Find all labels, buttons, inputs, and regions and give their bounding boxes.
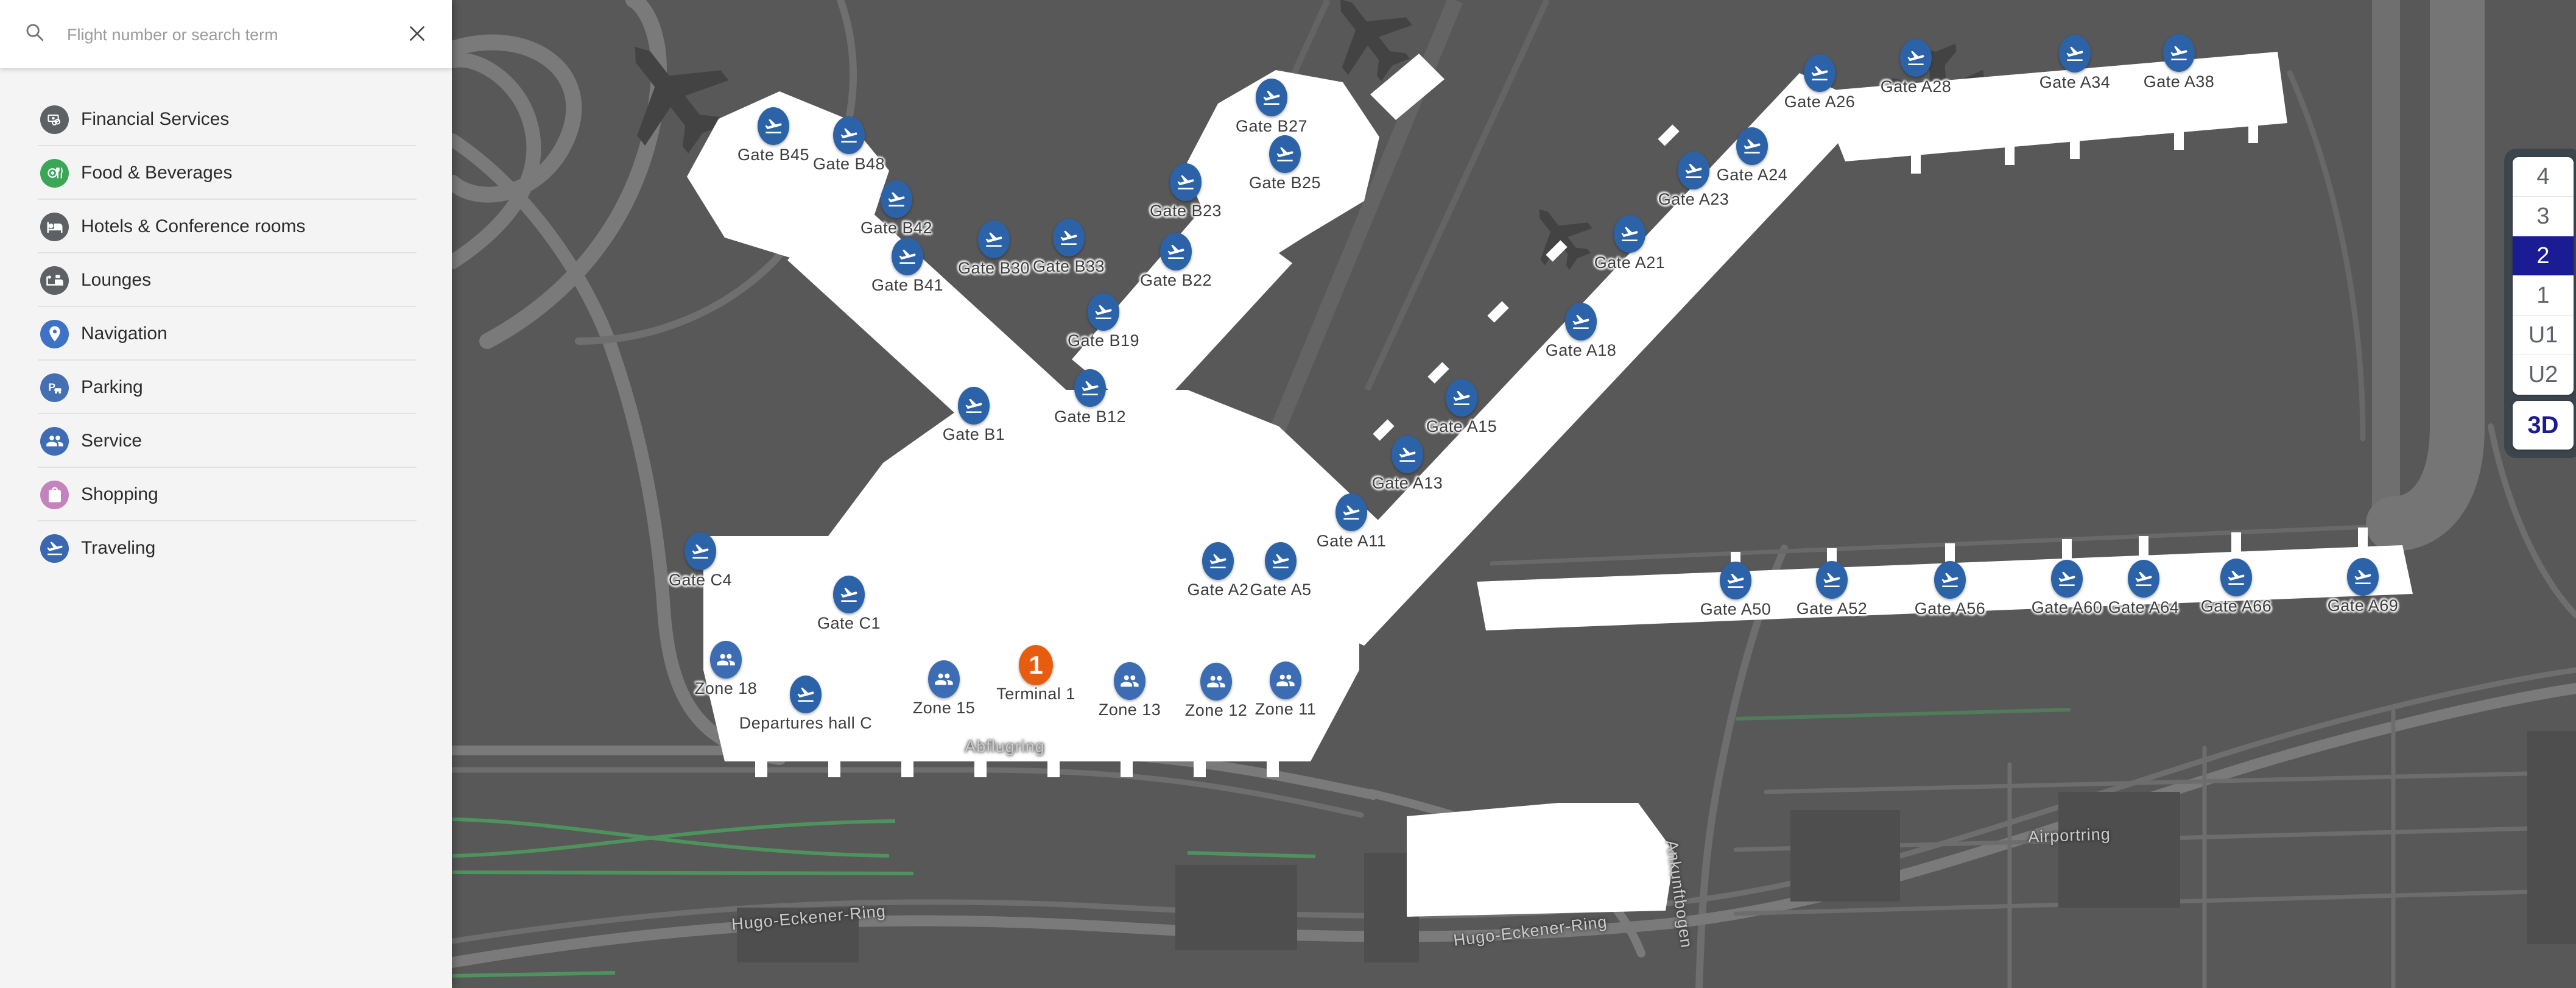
floor-button-u1[interactable]: U1 <box>2513 316 2574 355</box>
sidebar-item-service[interactable]: Service <box>0 414 452 468</box>
gate-marker[interactable] <box>1934 561 1966 599</box>
gate-marker[interactable] <box>892 238 923 275</box>
plane-icon <box>40 534 69 563</box>
gate-marker[interactable] <box>1900 39 1932 77</box>
gate-marker[interactable] <box>1256 79 1287 116</box>
search-icon <box>24 22 45 43</box>
search-bar <box>0 0 452 68</box>
zone-marker[interactable] <box>710 641 742 679</box>
gate-marker[interactable] <box>1392 436 1423 473</box>
sidebar-item-label: Service <box>81 431 142 451</box>
svg-text:P: P <box>48 381 55 393</box>
gate-label: Gate A21 <box>1594 253 1666 272</box>
gate-marker[interactable] <box>2163 34 2195 72</box>
sidebar-item-traveling[interactable]: Traveling <box>0 521 452 575</box>
departures-marker[interactable] <box>790 676 822 713</box>
sidebar: Financial ServicesFood & BeveragesHotels… <box>0 0 452 988</box>
floor-button-4[interactable]: 4 <box>2513 157 2574 197</box>
sidebar-item-food-beverages[interactable]: Food & Beverages <box>0 146 452 200</box>
street-label: Hugo-Eckener-Ring <box>731 902 887 934</box>
gate-marker[interactable] <box>2347 558 2379 596</box>
gate-marker[interactable] <box>1170 163 1202 201</box>
gate-marker[interactable] <box>833 576 865 613</box>
gate-marker[interactable] <box>1678 152 1709 189</box>
gate-label: Gate B33 <box>1033 257 1105 276</box>
gate-marker[interactable] <box>684 532 716 570</box>
floor-button-3[interactable]: 3 <box>2513 197 2574 236</box>
sidebar-item-label: Navigation <box>81 323 167 344</box>
hotel-icon <box>40 213 69 241</box>
gate-marker[interactable] <box>1202 542 1234 580</box>
street-label: Abflugring <box>965 738 1045 757</box>
close-icon[interactable] <box>404 21 430 46</box>
gate-marker[interactable] <box>2220 559 2252 596</box>
gate-label: Gate A5 <box>1250 580 1311 599</box>
gate-marker[interactable] <box>2128 560 2159 598</box>
gate-marker[interactable] <box>1720 562 1751 599</box>
category-list: Financial ServicesFood & BeveragesHotels… <box>0 68 452 575</box>
gate-label: Gate A15 <box>1426 417 1497 436</box>
money-icon <box>40 105 69 134</box>
gate-label: Gate A11 <box>1317 532 1387 551</box>
departures-label: Departures hall C <box>739 714 873 733</box>
gate-label: Gate A23 <box>1658 190 1730 209</box>
gate-marker[interactable] <box>1160 233 1192 270</box>
food-icon <box>40 159 69 188</box>
zone-label: Zone 13 <box>1099 700 1161 719</box>
sidebar-item-hotels-conference-rooms[interactable]: Hotels & Conference rooms <box>0 200 452 253</box>
gate-label: Gate B30 <box>958 259 1030 278</box>
gate-label: Gate B27 <box>1236 117 1307 136</box>
zone-label: Zone 12 <box>1185 701 1248 720</box>
gate-marker[interactable] <box>1804 54 1835 92</box>
shopping-icon <box>40 481 69 509</box>
zone-marker[interactable] <box>1270 662 1301 699</box>
sidebar-item-lounges[interactable]: Lounges <box>0 253 452 307</box>
sidebar-item-parking[interactable]: PParking <box>0 361 452 414</box>
gate-marker[interactable] <box>1336 493 1367 531</box>
gate-label: Gate B1 <box>943 425 1005 444</box>
airport-map-app: Gate B45Gate B48Gate B42Gate B41Gate B30… <box>0 0 2576 988</box>
gate-label: Gate B23 <box>1150 202 1222 221</box>
sidebar-item-label: Hotels & Conference rooms <box>81 216 306 237</box>
gate-label: Gate B42 <box>860 219 932 238</box>
gate-label: Gate B45 <box>737 146 809 164</box>
gate-marker[interactable] <box>758 107 789 145</box>
gate-marker[interactable] <box>958 387 990 425</box>
gate-label: Gate B19 <box>1068 331 1139 350</box>
floor-button-2[interactable]: 2 <box>2513 236 2574 276</box>
people-icon <box>40 427 69 456</box>
gate-marker[interactable] <box>978 221 1010 258</box>
terminal-1-marker[interactable]: 1 <box>1019 645 1053 685</box>
street-label: Hugo-Eckener-Ring <box>1452 912 1608 950</box>
gate-label: Gate A34 <box>2039 73 2111 92</box>
sidebar-item-label: Financial Services <box>81 109 229 130</box>
gate-label: Gate A64 <box>2108 598 2180 617</box>
zone-marker[interactable] <box>1114 662 1145 700</box>
gate-marker[interactable] <box>881 180 912 218</box>
gate-marker[interactable] <box>1265 542 1297 580</box>
sidebar-item-label: Lounges <box>81 270 151 291</box>
sidebar-item-label: Shopping <box>81 484 158 505</box>
sidebar-item-navigation[interactable]: Navigation <box>0 307 452 361</box>
parking-icon: P <box>40 373 69 402</box>
sidebar-item-shopping[interactable]: Shopping <box>0 468 452 521</box>
gate-label: Gate A24 <box>1717 166 1788 185</box>
gate-marker[interactable] <box>1614 215 1645 253</box>
terminal-1-label: Terminal 1 <box>996 685 1075 704</box>
floor-panel: 4321U1U2 <box>2513 157 2574 395</box>
gate-label: Gate B22 <box>1140 271 1212 290</box>
lounge-icon <box>40 266 69 295</box>
floor-button-1[interactable]: 1 <box>2513 276 2574 316</box>
gate-label: Gate A66 <box>2201 597 2272 616</box>
zone-marker[interactable] <box>928 660 960 698</box>
gate-label: Gate A56 <box>1915 599 1986 618</box>
zone-label: Zone 15 <box>913 699 976 718</box>
sidebar-item-label: Food & Beverages <box>81 163 232 183</box>
gate-label: Gate C1 <box>817 614 881 633</box>
gate-label: Gate B48 <box>813 155 885 174</box>
view-3d-button[interactable]: 3D <box>2513 401 2574 450</box>
gate-marker[interactable] <box>1074 369 1106 407</box>
gate-label: Gate B25 <box>1249 174 1321 192</box>
street-label: Airportring <box>2028 825 2111 847</box>
pin-icon <box>40 320 69 348</box>
gate-label: Gate A18 <box>1546 341 1617 360</box>
gate-label: Gate A28 <box>1881 77 1952 96</box>
search-input[interactable] <box>66 0 373 69</box>
gate-marker[interactable] <box>1816 561 1848 599</box>
gate-marker[interactable] <box>2051 560 2083 598</box>
zone-marker[interactable] <box>1200 663 1232 700</box>
gate-label: Gate C4 <box>669 571 732 590</box>
sidebar-item-financial-services[interactable]: Financial Services <box>0 93 452 146</box>
sidebar-item-label: Parking <box>81 377 143 398</box>
zone-label: Zone 18 <box>695 679 758 698</box>
gate-label: Gate A52 <box>1797 599 1868 618</box>
gate-marker[interactable] <box>1446 379 1477 417</box>
gate-label: Gate A50 <box>1700 600 1772 619</box>
gate-label: Gate A60 <box>2032 598 2103 617</box>
gate-marker[interactable] <box>1088 293 1119 331</box>
gate-label: Gate B41 <box>871 276 943 295</box>
gate-marker[interactable] <box>2059 35 2091 72</box>
gate-label: Gate A2 <box>1187 580 1248 599</box>
gate-marker[interactable] <box>833 116 865 154</box>
floor-button-u2[interactable]: U2 <box>2513 355 2574 395</box>
gate-marker[interactable] <box>1269 135 1301 173</box>
sidebar-item-label: Traveling <box>81 538 155 559</box>
gate-label: Gate A26 <box>1784 93 1856 111</box>
gate-label: Gate A38 <box>2144 72 2215 91</box>
floor-selector: 4321U1U2 3D <box>2504 149 2576 458</box>
gate-marker[interactable] <box>1736 127 1768 165</box>
zone-label: Zone 11 <box>1255 700 1317 719</box>
gate-label: Gate B12 <box>1054 408 1126 426</box>
gate-marker[interactable] <box>1053 219 1085 256</box>
gate-label: Gate A13 <box>1372 474 1443 493</box>
gate-label: Gate A69 <box>2328 596 2399 615</box>
gate-marker[interactable] <box>1565 303 1597 341</box>
street-label: Ankunftbogen <box>1662 839 1696 949</box>
